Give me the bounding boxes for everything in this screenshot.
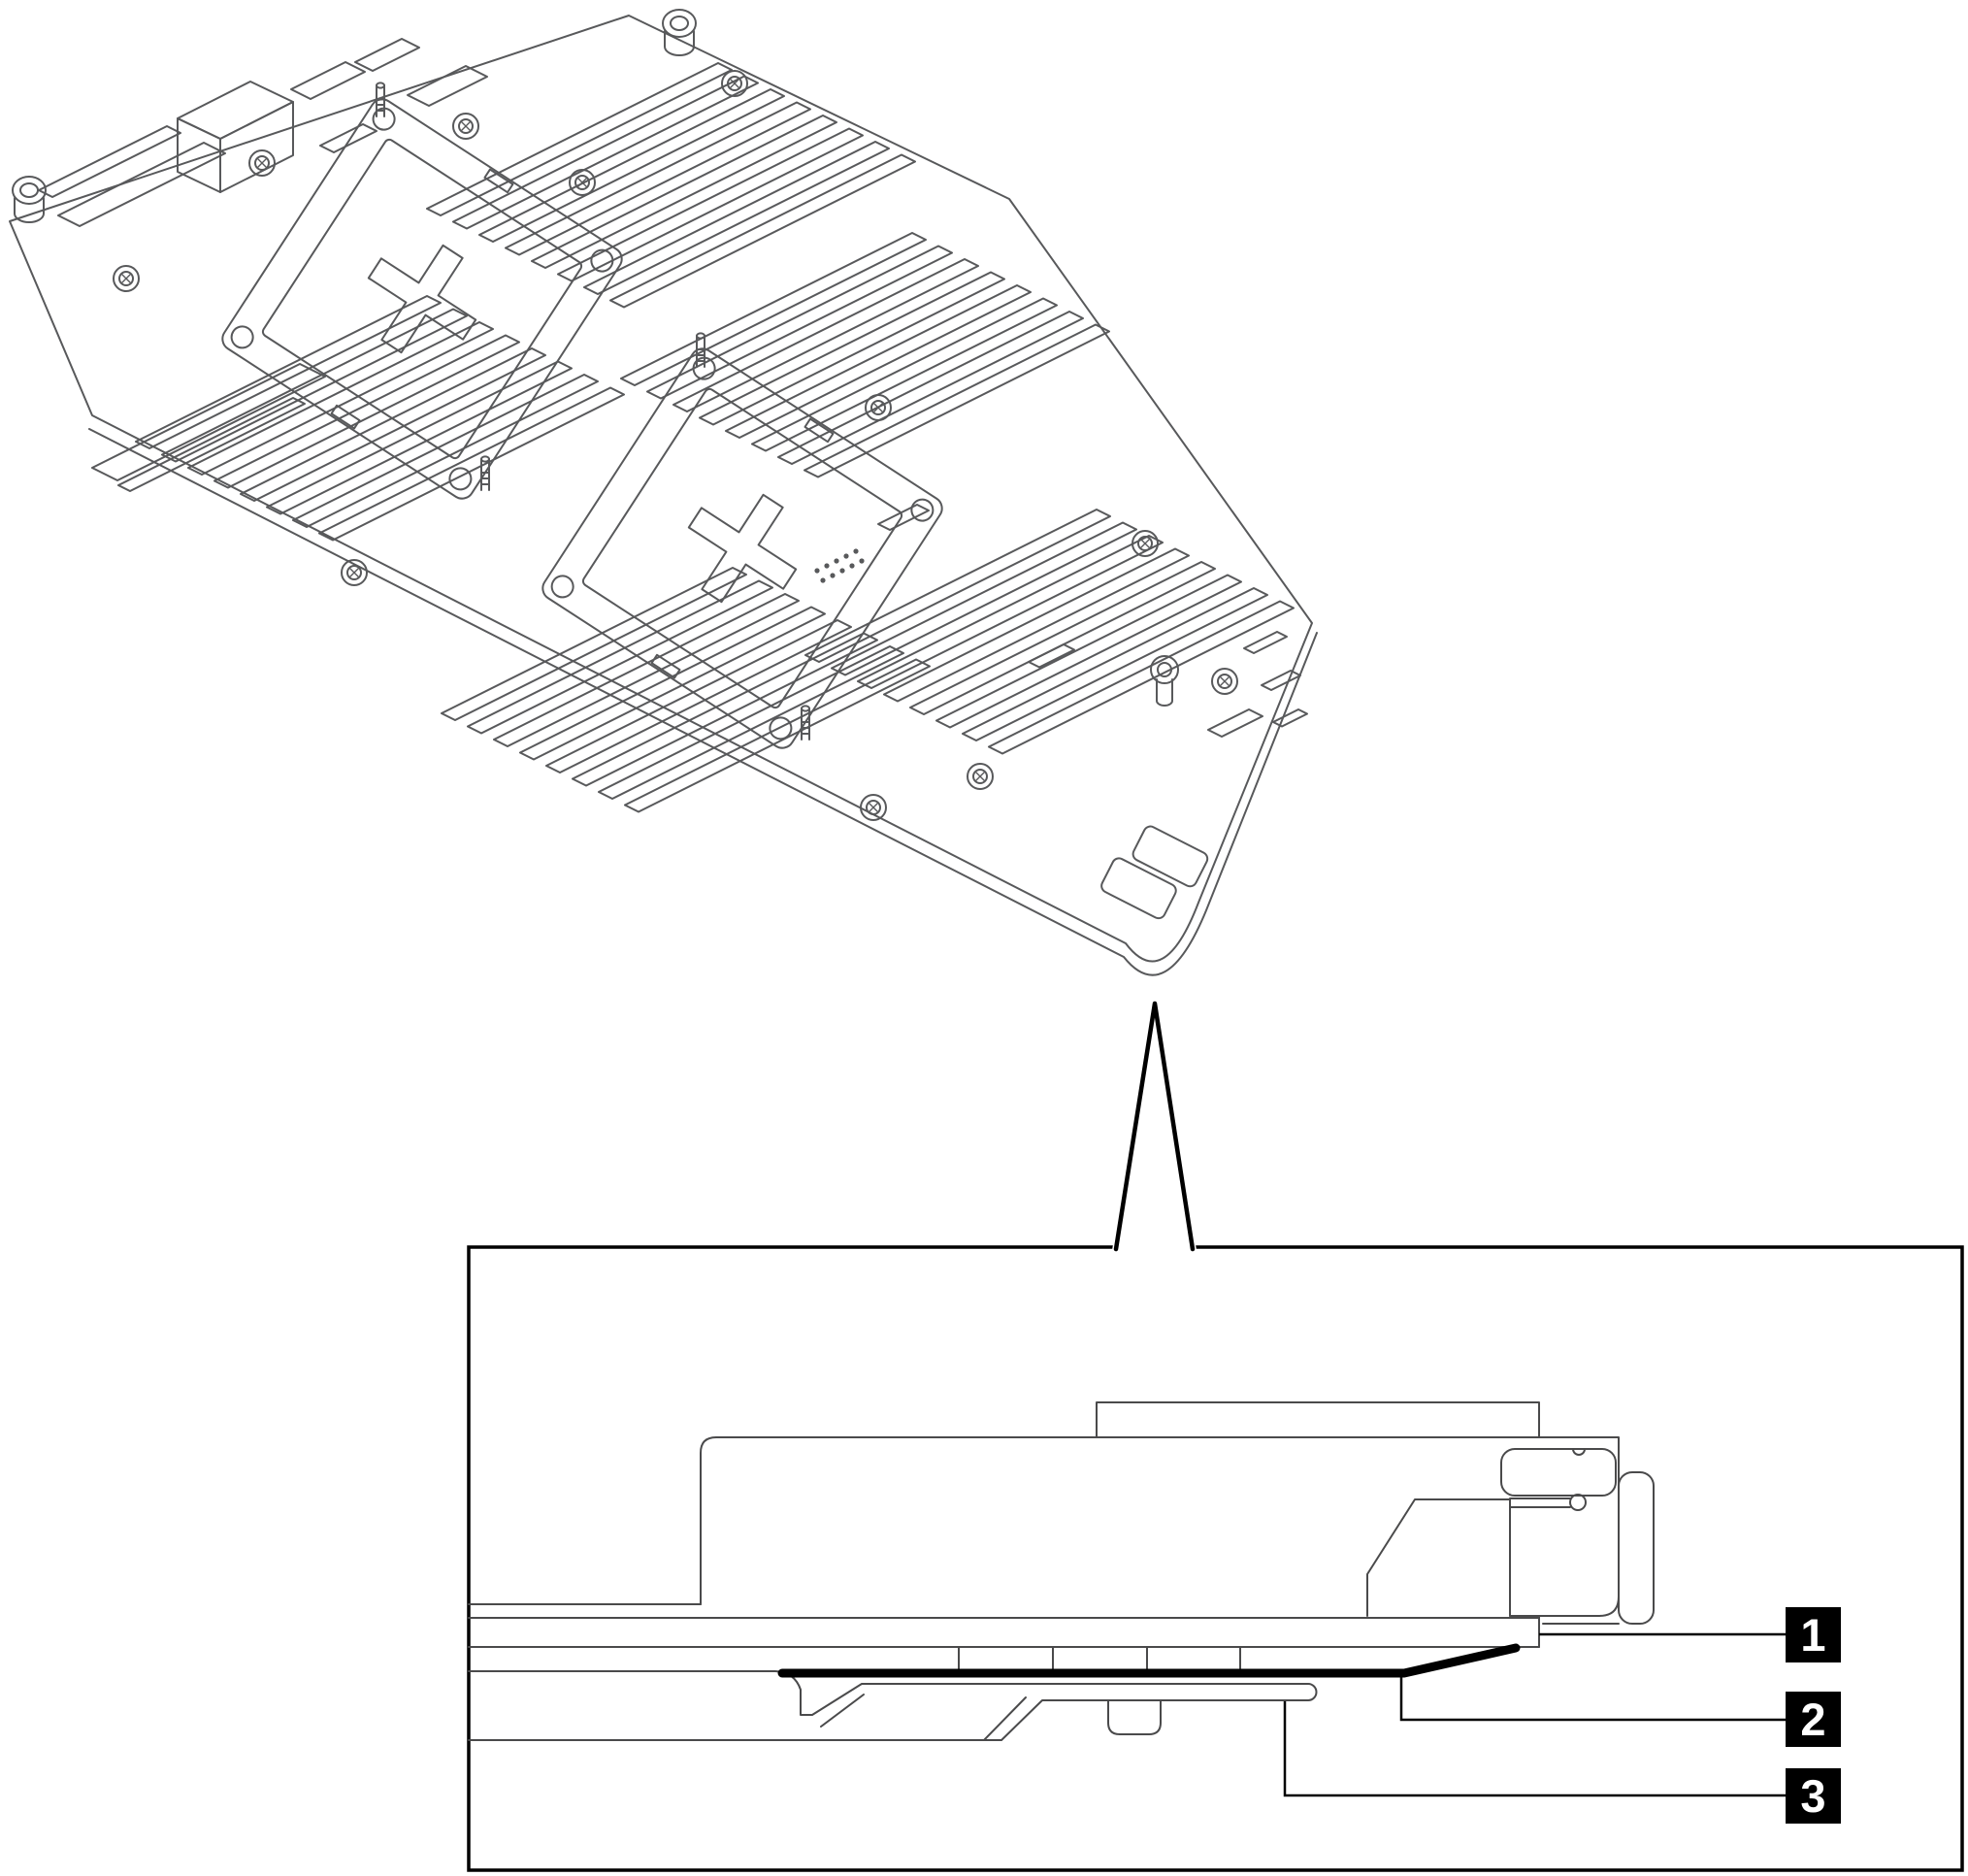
pin-header [814, 548, 864, 582]
vga-connector [1208, 709, 1263, 737]
guide-post [377, 82, 384, 116]
release-plunger [1151, 656, 1178, 683]
dimm-bank [442, 568, 930, 812]
callout-3-badge: 3 [1786, 1768, 1841, 1824]
illustration-stage: 1 2 3 [0, 0, 1968, 1876]
callout-box-border [469, 1247, 1962, 1870]
guide-post [697, 333, 705, 367]
dimm-bank [805, 510, 1294, 754]
motherboard-illustration [0, 0, 1968, 1876]
system-board-drawing [10, 10, 1317, 975]
thumbscrew [663, 10, 696, 55]
guide-post [802, 706, 809, 740]
dimm-bank [136, 296, 624, 541]
callout-1-badge: 1 [1786, 1607, 1841, 1662]
callout-box [469, 1000, 1962, 1870]
guide-post [481, 456, 489, 490]
callout-2-badge: 2 [1786, 1692, 1841, 1747]
dimm-bank [621, 233, 1109, 477]
pointer-triangle [1112, 1000, 1197, 1250]
dimm-bank [427, 63, 915, 308]
